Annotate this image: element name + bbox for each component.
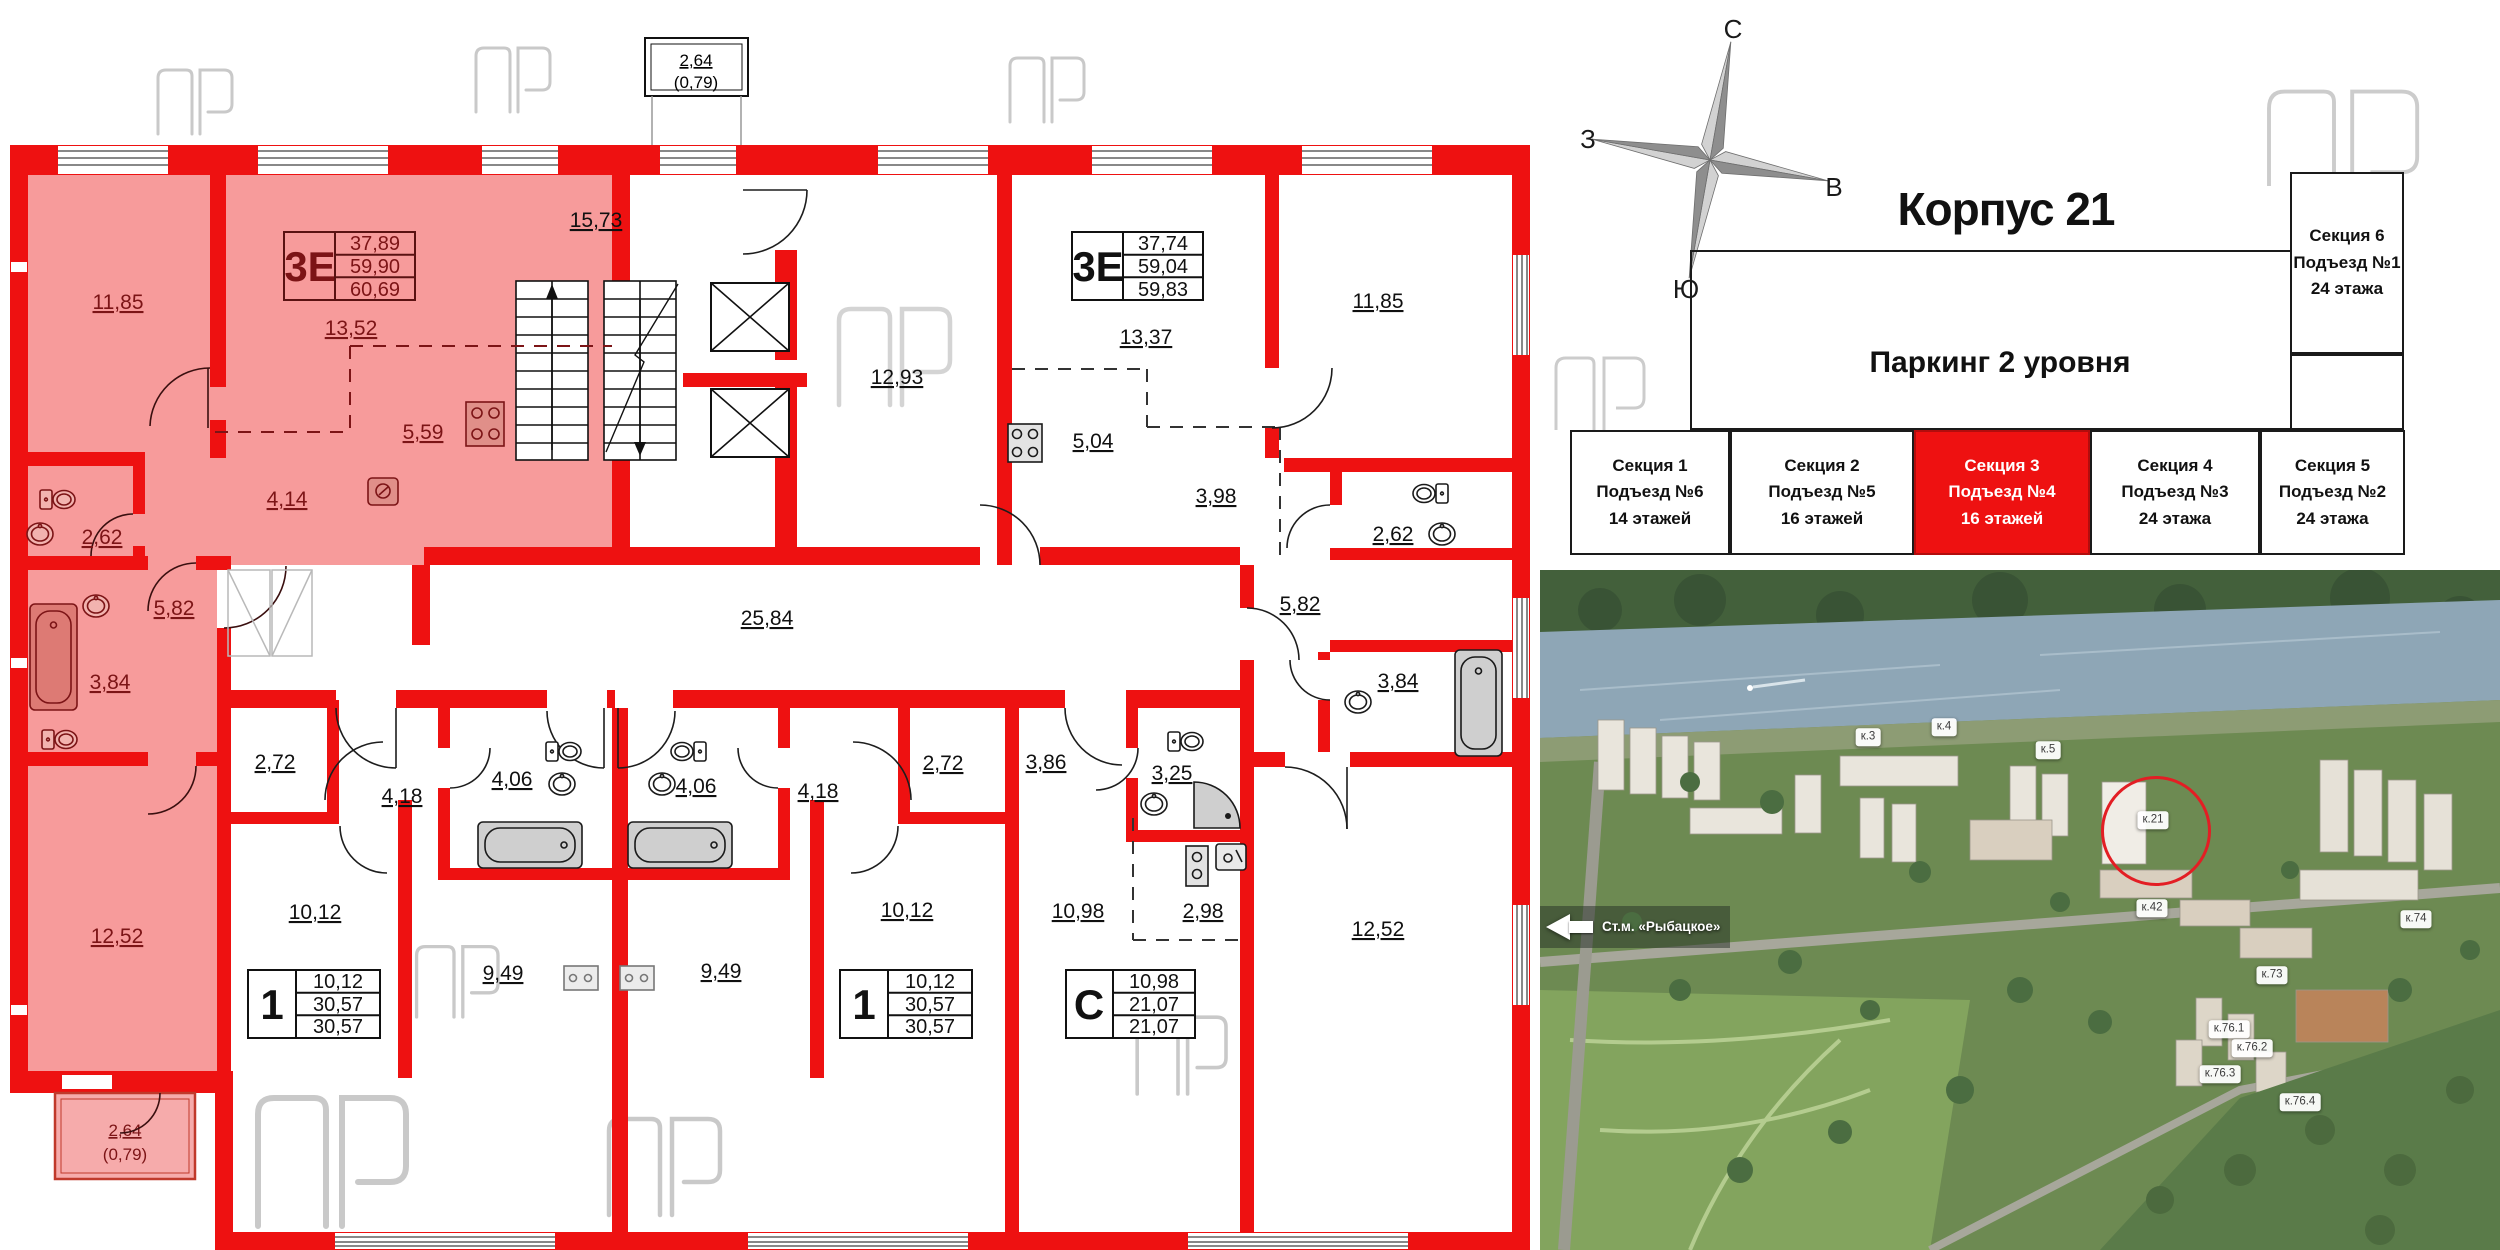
apartment-area: 37,74 — [1138, 233, 1188, 255]
shower-icon — [1194, 782, 1240, 828]
section-box-1[interactable]: Секция 1 Подъезд №6 14 этажей — [1570, 430, 1730, 555]
kitchen-sink-icon — [1216, 844, 1246, 870]
apartment-area: 21,07 — [1129, 1016, 1179, 1038]
vent-block — [564, 966, 654, 990]
room-area-label: 4,06 — [492, 768, 533, 791]
room-area-label: 5,59 — [403, 421, 444, 444]
balcony-top: 2,64 (0,79) — [645, 38, 748, 145]
location-map[interactable]: к.3 к.4 к.5 к.21 к.42 к.73 к.74 к.76.1 к… — [1540, 570, 2500, 1250]
page: 2,64 (0,79) 2,64 (0,79) — [0, 0, 2500, 1250]
section-name: Секция 2 — [1784, 453, 1859, 479]
apartment-type: С — [1074, 981, 1104, 1028]
section-floors: 24 этажа — [2139, 506, 2211, 532]
parking-label: Паркинг 2 уровня — [1850, 346, 2150, 380]
balcony-coef-label: (0,79) — [674, 73, 718, 92]
room-area-label: 5,82 — [1280, 593, 1321, 616]
room-area-label: 3,84 — [90, 671, 131, 694]
section-floors: 24 этажа — [2311, 276, 2383, 302]
room-area-label: 2,72 — [255, 751, 296, 774]
section-box-6[interactable]: Секция 6 Подъезд №1 24 этажа — [2290, 172, 2404, 354]
apartment-type: 3Е — [1072, 243, 1123, 290]
balcony-area-label: 2,64 — [679, 51, 712, 70]
map-building-label: к.74 — [2400, 910, 2431, 928]
metro-direction-arrow-icon — [1546, 914, 1570, 940]
map-render — [1540, 570, 2500, 1250]
section-entrance: Подъезд №2 — [2279, 479, 2386, 505]
room-area-label: 5,82 — [154, 597, 195, 620]
room-area-label: 10,12 — [881, 899, 934, 922]
room-area-label: 5,04 — [1073, 430, 1114, 453]
room-area-label: 2,62 — [82, 526, 123, 549]
apartment-area: 10,12 — [313, 971, 363, 993]
k21-highlight-circle — [2101, 776, 2211, 886]
room-area-label: 12,93 — [871, 366, 924, 389]
room-area-label: 4,06 — [676, 775, 717, 798]
parking-box — [1690, 250, 2308, 430]
apartment-type: 1 — [852, 981, 875, 1028]
room-area-label: 11,85 — [1353, 290, 1404, 313]
compass-east-label: В — [1825, 172, 1842, 202]
section-box-3-active[interactable]: Секция 3 Подъезд №4 16 этажей — [1914, 430, 2090, 555]
map-building-label: к.76.1 — [2209, 1020, 2250, 1038]
building-title: Корпус 21 — [1856, 182, 2156, 236]
room-area-label: 3,25 — [1152, 762, 1193, 785]
washing-machine-icon — [368, 478, 398, 505]
room-area-label: 10,12 — [289, 901, 342, 924]
map-building-label: к.4 — [1932, 718, 1957, 736]
section-box-5[interactable]: Секция 5 Подъезд №2 24 этажа — [2260, 430, 2405, 555]
compass-north-label: С — [1724, 14, 1743, 44]
room-area-label: 4,18 — [382, 785, 423, 808]
room-area-label: 3,86 — [1026, 751, 1067, 774]
apartment-area: 59,90 — [350, 256, 400, 278]
apartment-area: 10,12 — [905, 971, 955, 993]
balcony-bottom: 2,64 (0,79) — [55, 1093, 195, 1179]
room-area-label: 9,49 — [701, 960, 742, 983]
map-building-label: к.5 — [2036, 741, 2061, 759]
apartment-area: 21,07 — [1129, 994, 1179, 1016]
metro-direction-arrow-icon — [1569, 921, 1593, 933]
apartment-area: 59,04 — [1138, 256, 1188, 278]
room-area-label: 3,98 — [1196, 485, 1237, 508]
wardrobe-sketch — [228, 570, 312, 656]
room-area-label: 2,72 — [923, 752, 964, 775]
room-area-label: 25,84 — [741, 607, 794, 630]
room-area-label: 11,85 — [93, 291, 144, 314]
section-box-4[interactable]: Секция 4 Подъезд №3 24 этажа — [2090, 430, 2260, 555]
apartment-info-box[interactable]: С 10,98 21,07 21,07 — [1066, 970, 1195, 1038]
map-building-label: к.76.3 — [2200, 1065, 2241, 1083]
room-area-label: 2,62 — [1373, 523, 1414, 546]
room-area-label: 13,37 — [1120, 326, 1173, 349]
apartment-info-box[interactable]: 1 10,12 30,57 30,57 — [248, 970, 380, 1038]
floor-plan: 2,64 (0,79) 2,64 (0,79) — [0, 0, 1540, 1250]
apartment-area: 60,69 — [350, 279, 400, 301]
room-area-label: 12,52 — [1352, 918, 1405, 941]
metro-station-label: Ст.м. «Рыбацкое» — [1602, 919, 1720, 934]
section-entrance: Подъезд №3 — [2121, 479, 2228, 505]
map-building-label-k21: к.21 — [2137, 811, 2168, 829]
builder-watermark — [1548, 348, 1658, 438]
room-area-label: 12,52 — [91, 925, 144, 948]
section-floors: 16 этажей — [1961, 506, 2043, 532]
map-building-label: к.76.2 — [2232, 1039, 2273, 1057]
section-floors: 24 этажа — [2296, 506, 2368, 532]
section-name: Секция 3 — [1964, 453, 2039, 479]
map-building-label: к.3 — [1856, 728, 1881, 746]
section-name: Секция 6 — [2309, 223, 2384, 249]
park — [1540, 990, 1970, 1250]
section-box-2[interactable]: Секция 2 Подъезд №5 16 этажей — [1730, 430, 1914, 555]
room-area-label: 4,14 — [267, 488, 308, 511]
apartment-type: 1 — [260, 981, 283, 1028]
section-entrance: Подъезд №5 — [1768, 479, 1875, 505]
section-name: Секция 4 — [2137, 453, 2212, 479]
section-floors: 16 этажей — [1781, 506, 1863, 532]
section-floors: 14 этажей — [1609, 506, 1691, 532]
apartment-info-box[interactable]: 3Е 37,74 59,04 59,83 — [1072, 232, 1203, 301]
section-entrance: Подъезд №1 — [2293, 250, 2400, 276]
section-name: Секция 5 — [2295, 453, 2370, 479]
apartment-area: 30,57 — [905, 994, 955, 1016]
elevator-shafts — [711, 283, 789, 457]
apartment-area: 30,57 — [313, 994, 363, 1016]
stove-icon — [1008, 424, 1042, 462]
room-area-label: 13,52 — [325, 317, 378, 340]
apartment-area: 37,89 — [350, 233, 400, 255]
section-box-6-lower — [2290, 354, 2404, 430]
apartment-info-box[interactable]: 1 10,12 30,57 30,57 — [840, 970, 972, 1038]
map-building-label: к.76.4 — [2280, 1093, 2321, 1111]
balcony-area-label: 2,64 — [108, 1121, 141, 1140]
compass-west-label: З — [1580, 124, 1596, 154]
section-entrance: Подъезд №6 — [1596, 479, 1703, 505]
room-area-label: 15,73 — [570, 209, 623, 232]
room-area-label: 9,49 — [483, 962, 524, 985]
apartment-area: 59,83 — [1138, 279, 1188, 301]
stove-icon — [466, 402, 504, 446]
stove-icon — [1186, 846, 1208, 886]
apartment-area: 30,57 — [313, 1016, 363, 1038]
map-building-label: к.42 — [2136, 899, 2167, 917]
builder-watermark — [2256, 76, 2436, 186]
map-building-label: к.73 — [2256, 966, 2287, 984]
room-area-label: 3,84 — [1378, 670, 1419, 693]
balcony-coef-label: (0,79) — [103, 1145, 147, 1164]
apartment-type: 3Е — [284, 243, 335, 290]
room-area-label: 10,98 — [1052, 900, 1105, 923]
section-entrance: Подъезд №4 — [1948, 479, 2055, 505]
section-name: Секция 1 — [1612, 453, 1687, 479]
room-area-label: 4,18 — [798, 780, 839, 803]
apartment-area: 30,57 — [905, 1016, 955, 1038]
apartment-area: 10,98 — [1129, 971, 1179, 993]
room-area-label: 2,98 — [1183, 900, 1224, 923]
